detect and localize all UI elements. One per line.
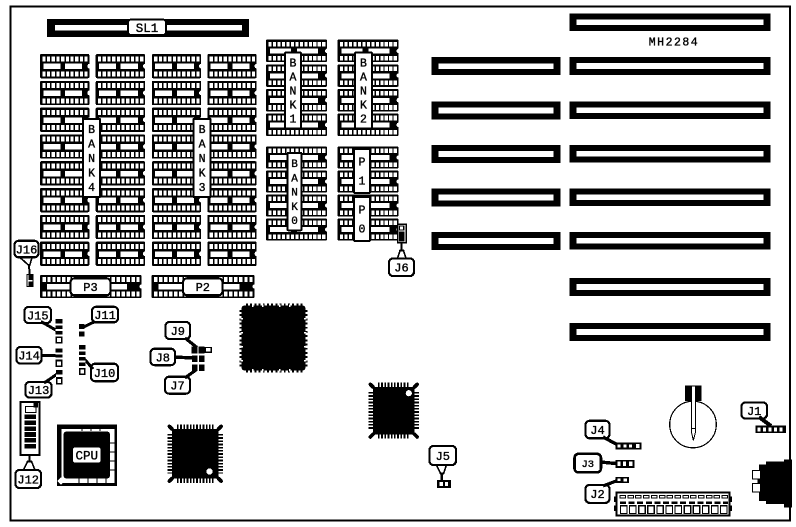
- svg-text:N: N: [88, 153, 95, 166]
- svg-text:A: A: [199, 139, 206, 152]
- svg-text:N: N: [199, 153, 206, 166]
- svg-text:N: N: [291, 188, 298, 200]
- svg-text:K: K: [199, 168, 206, 181]
- svg-text:J6: J6: [394, 262, 408, 276]
- svg-text:N: N: [290, 86, 297, 99]
- svg-text:4: 4: [88, 182, 95, 195]
- svg-text:0: 0: [359, 224, 366, 237]
- svg-text:B: B: [290, 58, 297, 71]
- svg-text:J14: J14: [18, 350, 40, 364]
- svg-text:J3: J3: [581, 459, 594, 471]
- svg-text:A: A: [360, 72, 367, 85]
- svg-text:2: 2: [360, 114, 367, 127]
- svg-text:J12: J12: [17, 473, 39, 487]
- svg-text:J2: J2: [590, 488, 604, 502]
- svg-text:CPU: CPU: [76, 450, 99, 464]
- svg-text:J7: J7: [170, 380, 184, 394]
- svg-text:P: P: [359, 157, 366, 170]
- svg-text:MH2284: MH2284: [649, 37, 699, 50]
- svg-text:P2: P2: [196, 281, 210, 295]
- svg-text:B: B: [360, 58, 367, 71]
- svg-text:N: N: [360, 86, 367, 99]
- svg-text:J4: J4: [590, 424, 604, 438]
- svg-text:0: 0: [291, 216, 298, 228]
- svg-text:A: A: [290, 72, 297, 85]
- svg-text:B: B: [88, 124, 95, 137]
- svg-text:J13: J13: [28, 384, 50, 398]
- svg-text:J9: J9: [171, 325, 185, 339]
- svg-text:1: 1: [290, 114, 297, 127]
- svg-text:A: A: [88, 139, 95, 152]
- svg-text:J5: J5: [436, 450, 450, 464]
- svg-text:SL1: SL1: [136, 22, 159, 36]
- svg-text:J8: J8: [156, 351, 170, 365]
- svg-text:A: A: [291, 173, 298, 185]
- svg-text:B: B: [291, 159, 298, 171]
- svg-text:J16: J16: [16, 243, 38, 257]
- svg-text:K: K: [88, 168, 95, 181]
- svg-text:B: B: [199, 124, 206, 137]
- svg-text:3: 3: [199, 182, 206, 195]
- svg-text:P3: P3: [83, 281, 97, 295]
- svg-text:J11: J11: [94, 309, 116, 323]
- svg-text:J15: J15: [27, 309, 49, 323]
- svg-text:K: K: [290, 100, 297, 113]
- svg-text:J10: J10: [94, 367, 116, 381]
- svg-text:K: K: [291, 202, 298, 214]
- svg-text:1: 1: [359, 176, 366, 189]
- svg-text:P: P: [359, 205, 366, 218]
- svg-text:K: K: [360, 100, 367, 113]
